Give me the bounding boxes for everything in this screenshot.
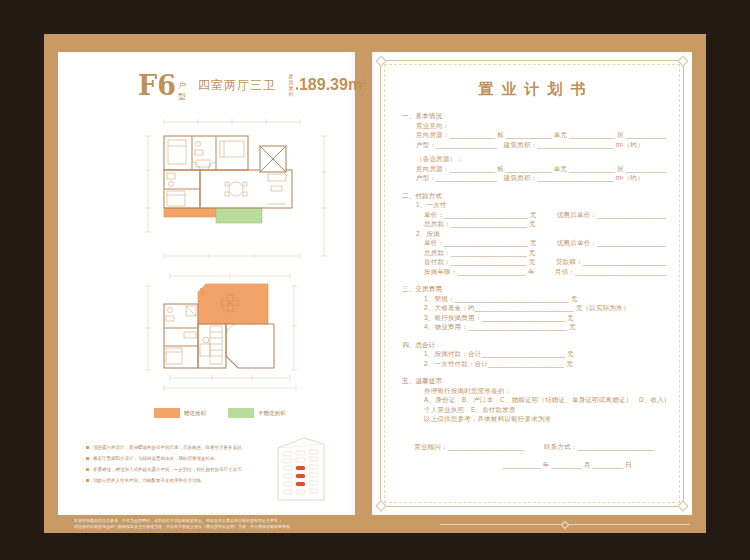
form-row: 1、契税：______________________________ 元 — [402, 294, 666, 304]
gift-area-label: 赠送面积 — [184, 410, 206, 417]
form-row: 首付款：____________________ 元 贷款额：_________… — [402, 257, 666, 267]
form-row: 办理银行按揭时您需准备的： — [402, 386, 666, 396]
form-row: 4、物业费用：__________________________ 元 — [402, 322, 666, 332]
unit-header: F6 户型 四室两厅三卫 建筑 面积 189.39m2 — [138, 68, 338, 102]
form-row: 个人营业执照 E、首付款发票 — [402, 405, 666, 415]
area-value: 189.39m2 — [299, 76, 366, 94]
form-row: 1、按揭付款：合计______________________ 元 — [402, 349, 666, 359]
form-row: 3、银行按揭费用：______________________ 元 — [402, 313, 666, 323]
form-row: 户型：________________ 建筑面积：_______________… — [402, 140, 666, 150]
form-row: 以上仅供您参考，具体材料以银行要求为准 — [402, 414, 666, 424]
form-row: 按揭年限：__________________ 年 月供：___________… — [402, 267, 666, 277]
form-row: 1、一次性 — [402, 200, 666, 210]
form-row — [402, 276, 666, 281]
floor-plan-lower — [140, 270, 330, 408]
form-row: __________ 年 ________ 月 ________ 日 — [402, 460, 666, 470]
form-row: 三、交房费用 — [402, 284, 666, 294]
form-row: 总房款：____________________ 元 — [402, 248, 666, 258]
unit-type-suffix: 户型 — [178, 80, 186, 102]
form-row: 四、总合计 — [402, 340, 666, 350]
area-number: 189.39m — [299, 76, 362, 93]
form-row — [402, 424, 666, 429]
footer-divider-ornament — [440, 524, 690, 525]
area-superscript: 2 — [362, 78, 366, 85]
disclaimer-line2: 赠送面积以政府规划部门最终核定及交付标准为准，买卖双方权利义务以《商品房买卖合同… — [74, 524, 394, 530]
form-row: （备选房源）： — [402, 154, 666, 164]
form-row: 意向房源：____________ 栋 ____________ 单元 ____… — [402, 130, 666, 140]
area-caption-line1: 建筑 — [289, 73, 294, 85]
plan-legend: 赠送面积 半赠送面积 — [154, 408, 286, 418]
form-row: 2、按揭 — [402, 229, 666, 239]
form-row: 置业意向： — [402, 121, 666, 131]
form-row: 一、基本情况 — [402, 111, 666, 121]
legend-gift-area: 赠送面积 — [154, 408, 206, 418]
form-row: 2、一次性付款：合计____________________ 元 — [402, 359, 666, 369]
feature-item: 顶层露台的设计，延伸墅级的舒适空间尺度，品质构造，悦享生活更多美好。 — [86, 442, 268, 453]
floor-plan-upper — [140, 114, 330, 264]
form-row: 户型：________________ 建筑面积：_______________… — [402, 173, 666, 183]
feature-item: 餐客厅景观阳台设计，与园林美景相连接，随时尽享惬意时光。 — [86, 453, 268, 464]
footer-strip: 本资料所载内容仅供参考，不作为合同要约，相关内容不排除因政府规划、规定及开发商未… — [44, 515, 706, 533]
form-row: 二、付款方式 — [402, 191, 666, 201]
half-gift-area-swatch — [228, 408, 254, 418]
purchase-form: 一、基本情况 置业意向： 意向房源：____________ 栋 _______… — [402, 108, 666, 470]
feature-list: 顶层露台的设计，延伸墅级的舒适空间尺度，品质构造，悦享生活更多美好。餐客厅景观阳… — [86, 442, 268, 486]
form-row: 五、温馨提示 — [402, 376, 666, 386]
area-caption: 建筑 面积 — [288, 73, 294, 97]
building-location-icon — [270, 432, 332, 508]
form-row: 2、大修基金：约__________________________ 元（以实际… — [402, 303, 666, 313]
form-row: 单价：______________________ 元 优惠后单价：______… — [402, 238, 666, 248]
form-row: 总房款：____________________ 元 — [402, 219, 666, 229]
form-row — [402, 368, 666, 373]
form-row: 置业顾问：____________________ 联系方式：_________… — [402, 442, 666, 452]
area-dot-icon — [296, 87, 298, 90]
form-row: A、身份证 B、户口本 C、婚姻证明（结婚证、单身证明或离婚证） D、收入证明、… — [402, 395, 666, 405]
form-row: 单价：______________________ 元 优惠后单价：______… — [402, 210, 666, 220]
floorplan-page: F6 户型 四室两厅三卫 建筑 面积 189.39m2 — [58, 52, 355, 515]
page-title: 置业计划书 — [372, 80, 692, 99]
gift-area-swatch — [154, 408, 180, 418]
unit-type-code: F6 — [138, 72, 176, 99]
form-row — [402, 183, 666, 188]
form-row — [402, 332, 666, 337]
feature-item: 多重赠送，赠送加入式的超大露台空间，一步到位，轻松拥有舒适尺寸大宅。 — [86, 464, 268, 475]
area-caption-line2: 面积 — [289, 85, 294, 97]
gold-frame: F6 户型 四室两厅三卫 建筑 面积 189.39m2 — [44, 34, 706, 533]
area-group: 建筑 面积 189.39m2 — [288, 73, 366, 97]
half-gift-area-label: 半赠送面积 — [258, 410, 286, 417]
legend-half-gift-area: 半赠送面积 — [228, 408, 286, 418]
disclaimer-text: 本资料所载内容仅供参考，不作为合同要约，相关内容不排除因政府规划、规定及开发商未… — [74, 518, 394, 529]
room-layout-label: 四室两厅三卫 — [198, 77, 276, 94]
form-row: 意向房源：____________ 栋 ____________ 单元 ____… — [402, 164, 666, 174]
purchase-plan-page: 置业计划书 一、基本情况 置业意向： 意向房源：____________ 栋 _… — [372, 52, 692, 515]
brochure-canvas: { "canvas": { "background_color": "#241b… — [0, 0, 750, 560]
feature-item: 动静分区的人性化空间，功能配套齐全有序的生活动线。 — [86, 475, 268, 486]
